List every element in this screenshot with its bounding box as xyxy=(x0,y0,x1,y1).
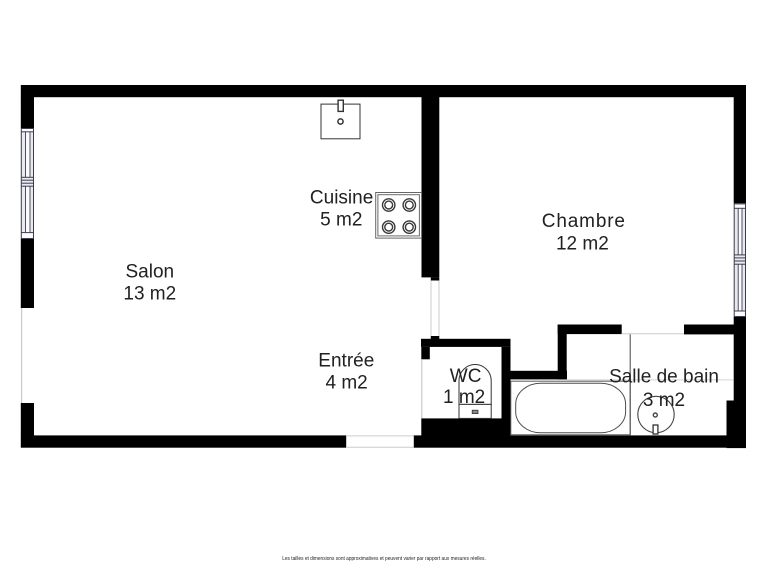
svg-text:Salon: Salon xyxy=(125,262,174,283)
svg-text:3 m2: 3 m2 xyxy=(643,390,685,411)
svg-text:1 m2: 1 m2 xyxy=(443,387,485,408)
svg-text:5 m2: 5 m2 xyxy=(320,209,362,230)
svg-text:Cuisine: Cuisine xyxy=(310,187,373,208)
svg-text:Entrée: Entrée xyxy=(318,351,374,372)
svg-text:4 m2: 4 m2 xyxy=(325,372,367,393)
svg-text:Salle de bain: Salle de bain xyxy=(609,366,719,387)
svg-text:12 m2: 12 m2 xyxy=(556,234,609,255)
svg-text:13 m2: 13 m2 xyxy=(123,283,176,304)
svg-text:WC: WC xyxy=(450,366,482,387)
svg-text:Les tailles et dimensions sont: Les tailles et dimensions sont approxima… xyxy=(282,556,486,562)
svg-text:Chambre: Chambre xyxy=(542,211,626,232)
